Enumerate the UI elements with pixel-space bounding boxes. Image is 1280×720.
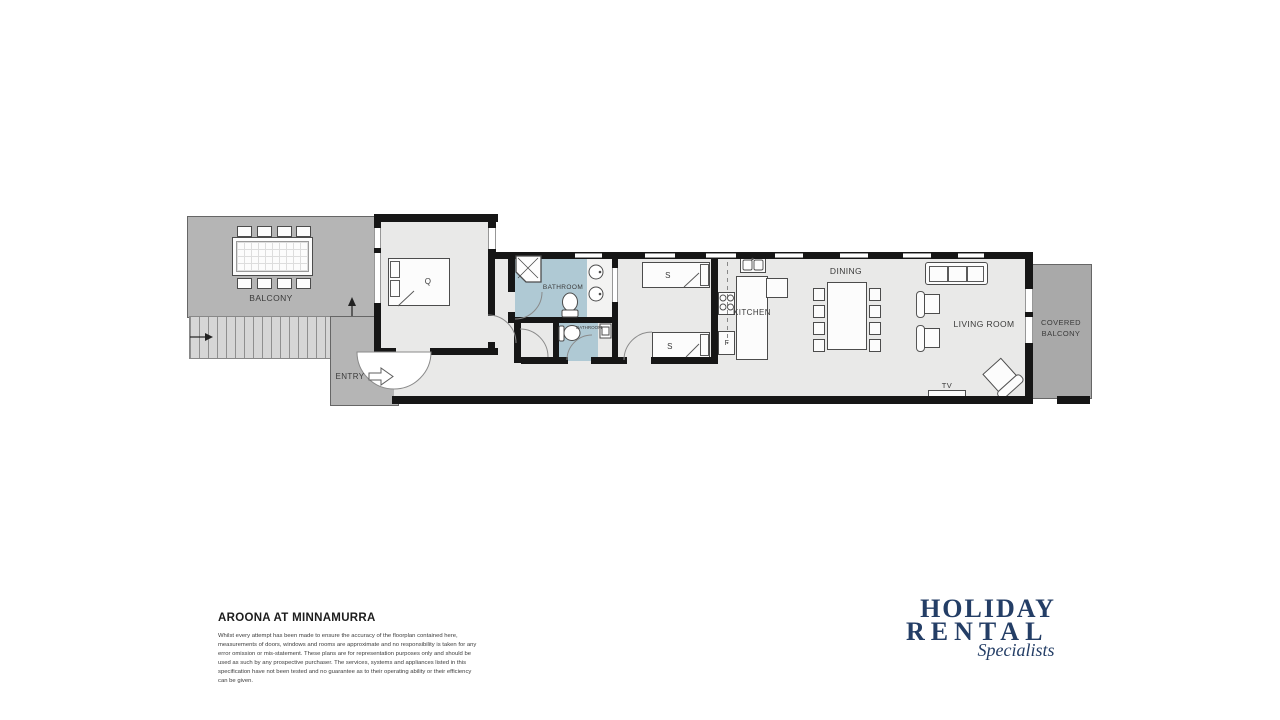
wall [392, 396, 1032, 404]
window [1025, 289, 1033, 312]
hallway-floor [394, 350, 494, 400]
window [612, 268, 618, 302]
tv-label: TV [937, 381, 957, 390]
single-bed-label: S [658, 271, 678, 280]
window [1025, 317, 1033, 343]
overhead-counter-line [727, 254, 728, 344]
armchair [924, 328, 940, 348]
dining-label: DINING [816, 267, 876, 276]
pillow [700, 334, 709, 356]
kitchen-label: KITCHEN [722, 308, 782, 317]
wall [508, 252, 515, 292]
outdoor-chair [296, 278, 311, 289]
dining-chair [813, 305, 825, 318]
wall [612, 302, 618, 364]
outdoor-chair [257, 278, 272, 289]
wall [488, 342, 495, 355]
disclaimer-text: Whilst every attempt has been made to en… [218, 632, 478, 686]
wall [514, 322, 521, 363]
staircase [189, 316, 332, 359]
kitchen-counter [766, 278, 788, 298]
window [775, 253, 803, 258]
outdoor-table-top [236, 241, 309, 272]
fridge-label: F [717, 339, 737, 348]
dining-chair [869, 288, 881, 301]
outdoor-chair [257, 226, 272, 237]
outdoor-table [232, 237, 313, 276]
kitchen-sink [740, 257, 766, 273]
logo-tagline: Specialists [963, 640, 1069, 660]
wall [492, 252, 1032, 259]
outdoor-chair [277, 278, 292, 289]
wall [618, 357, 627, 364]
wall [1057, 396, 1090, 404]
window [374, 253, 381, 303]
window [958, 253, 984, 258]
wall [488, 252, 495, 316]
property-title: AROONA AT MINNAMURRA [218, 612, 376, 624]
pillow [700, 264, 709, 286]
wall [553, 357, 568, 364]
covered-balcony-label-1: COVERED [1036, 318, 1086, 327]
single-bed-label: S [660, 342, 680, 351]
window [706, 253, 736, 258]
bathroom-small-label: BATHROOM [575, 323, 603, 332]
dining-chair [813, 288, 825, 301]
window [645, 253, 675, 258]
wall [374, 214, 498, 222]
bathroom-label: BATHROOM [540, 283, 586, 292]
window [488, 228, 496, 249]
wall [392, 352, 399, 365]
dining-chair [869, 322, 881, 335]
wall [521, 357, 555, 364]
outdoor-chair [277, 226, 292, 237]
dining-chair [813, 339, 825, 352]
window [575, 253, 602, 258]
outdoor-chair [296, 226, 311, 237]
dining-chair [869, 339, 881, 352]
covered-balcony-label-2: BALCONY [1036, 329, 1086, 338]
entry-label: ENTRY [332, 372, 368, 381]
window [840, 253, 868, 258]
kitchen-island [736, 276, 768, 360]
outdoor-chair [237, 278, 252, 289]
outdoor-chair [237, 226, 252, 237]
window [903, 253, 931, 258]
dining-table [827, 282, 867, 350]
wall [612, 252, 618, 268]
floorplan-page: BALCONY ENTRY Q BATHROOM BATHROOM S S KI… [0, 0, 1280, 720]
pillow [390, 261, 400, 278]
sofa-cushion [948, 266, 967, 282]
balcony-label: BALCONY [231, 294, 311, 303]
armchair [924, 294, 940, 314]
pillow [390, 280, 400, 297]
sofa-cushion [967, 266, 984, 282]
queen-bed-label: Q [418, 277, 438, 286]
dining-chair [813, 322, 825, 335]
dining-chair [869, 305, 881, 318]
vanity-floor [587, 255, 612, 317]
living-room-label: LIVING ROOM [948, 320, 1020, 329]
sofa-cushion [929, 266, 948, 282]
wall [651, 357, 718, 364]
window [374, 228, 381, 248]
